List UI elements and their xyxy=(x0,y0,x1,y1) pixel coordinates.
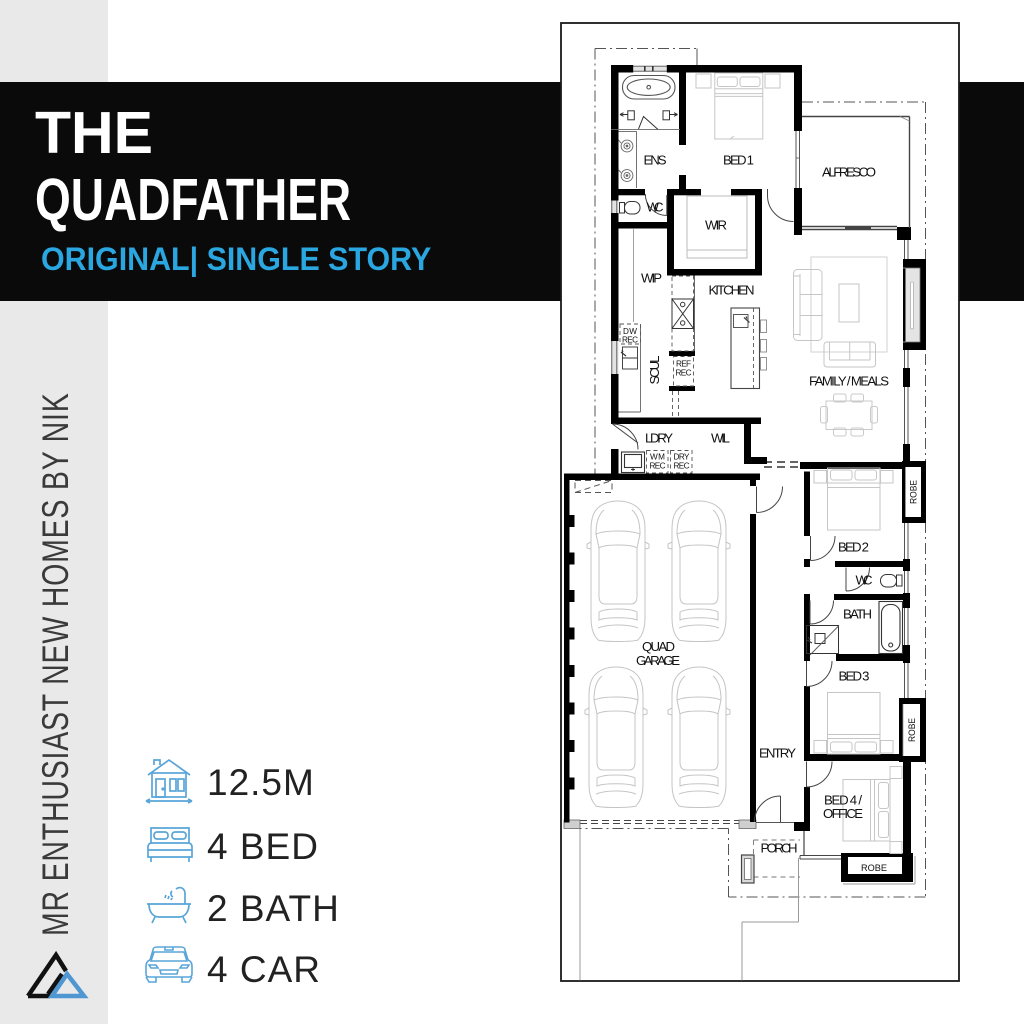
svg-text:ROBE: ROBE xyxy=(907,718,918,742)
svg-text:SCUL: SCUL xyxy=(647,356,662,385)
svg-text:WIL: WIL xyxy=(711,431,730,446)
svg-text:LDRY: LDRY xyxy=(645,431,673,446)
svg-text:ROBE: ROBE xyxy=(861,863,887,874)
svg-text:OFFICE: OFFICE xyxy=(823,806,863,821)
svg-text:QUAD: QUAD xyxy=(642,639,675,654)
svg-text:WM: WM xyxy=(650,453,665,462)
svg-text:FAMILY / MEALS: FAMILY / MEALS xyxy=(809,374,889,389)
svg-text:GARAGE: GARAGE xyxy=(636,653,680,668)
svg-text:WIR: WIR xyxy=(705,218,727,233)
svg-text:ALFRESCO: ALFRESCO xyxy=(822,165,876,180)
svg-text:REC: REC xyxy=(622,336,638,345)
svg-text:ROBE: ROBE xyxy=(909,480,920,504)
svg-text:REC: REC xyxy=(650,462,666,471)
svg-text:KITCHEN: KITCHEN xyxy=(709,283,755,298)
svg-text:REF: REF xyxy=(676,360,691,369)
svg-text:PORCH: PORCH xyxy=(761,841,798,856)
svg-text:ENS: ENS xyxy=(644,153,667,168)
svg-text:WC: WC xyxy=(856,573,873,588)
svg-text:DRY: DRY xyxy=(674,453,691,462)
svg-text:ENTRY: ENTRY xyxy=(759,746,796,761)
svg-text:BED 2: BED 2 xyxy=(838,540,869,555)
svg-text:WIP: WIP xyxy=(641,271,662,286)
svg-text:WC: WC xyxy=(647,200,664,215)
svg-text:BED 3: BED 3 xyxy=(839,669,870,684)
svg-text:BATH: BATH xyxy=(843,607,872,622)
svg-text:BED 1: BED 1 xyxy=(723,153,754,168)
svg-text:REC: REC xyxy=(674,462,690,471)
svg-text:REC: REC xyxy=(676,369,692,378)
